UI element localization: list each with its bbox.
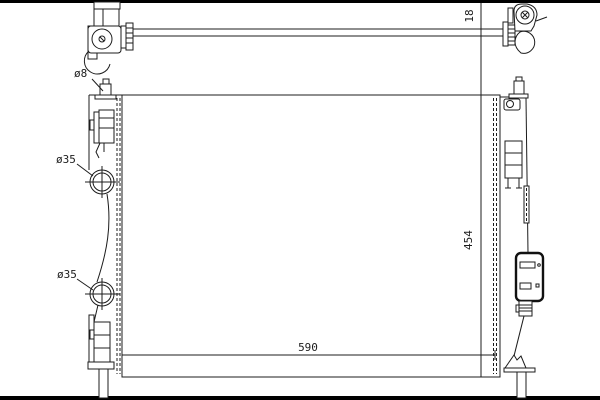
lower-hose-port [85, 278, 120, 310]
right-mount-clip [505, 141, 522, 188]
tank-contour [97, 194, 109, 282]
screw-tab [504, 99, 520, 110]
crossbar-assembly [84, 2, 547, 74]
left-tank [77, 79, 122, 398]
upper-mount-clip [90, 110, 114, 158]
lower-lobe [515, 31, 535, 53]
label-upper-port: ø35 [56, 153, 76, 166]
drain-connector [516, 253, 543, 301]
ribbed-strip [524, 186, 529, 223]
radiator-drawing-canvas: 18 ø8 ø35 ø35 454 590 [0, 0, 600, 400]
upper-hose-port [85, 166, 120, 198]
tank-edge [526, 98, 528, 253]
bottom-border-bar [0, 396, 600, 400]
drain-valve [516, 301, 532, 316]
right-tank [500, 77, 543, 398]
leader-upper-port [77, 164, 93, 176]
crossbar-tube [133, 29, 503, 36]
label-bleed-port: ø8 [74, 67, 87, 80]
radiator-technical-drawing: 18 ø8 ø35 ø35 454 590 [0, 0, 600, 400]
radiator-body [117, 95, 500, 377]
label-lower-port: ø35 [57, 268, 77, 281]
left-bottom-pin [99, 369, 108, 398]
leader-lower-port [77, 279, 93, 290]
right-bottom-pin [517, 372, 526, 398]
right-foot [504, 355, 535, 398]
crossbar-left-mount [84, 2, 133, 74]
radiator-core [122, 95, 500, 377]
top-border-bar [0, 0, 600, 3]
label-crossbar-offset: 18 [463, 9, 476, 22]
left-foot [88, 362, 114, 369]
label-core-width: 590 [298, 341, 318, 354]
lower-mount-clip [88, 305, 114, 398]
crossbar-right-mount [503, 4, 547, 53]
bleed-pipe [95, 79, 116, 99]
filler-pipe [509, 77, 528, 98]
label-core-height: 454 [462, 230, 475, 250]
